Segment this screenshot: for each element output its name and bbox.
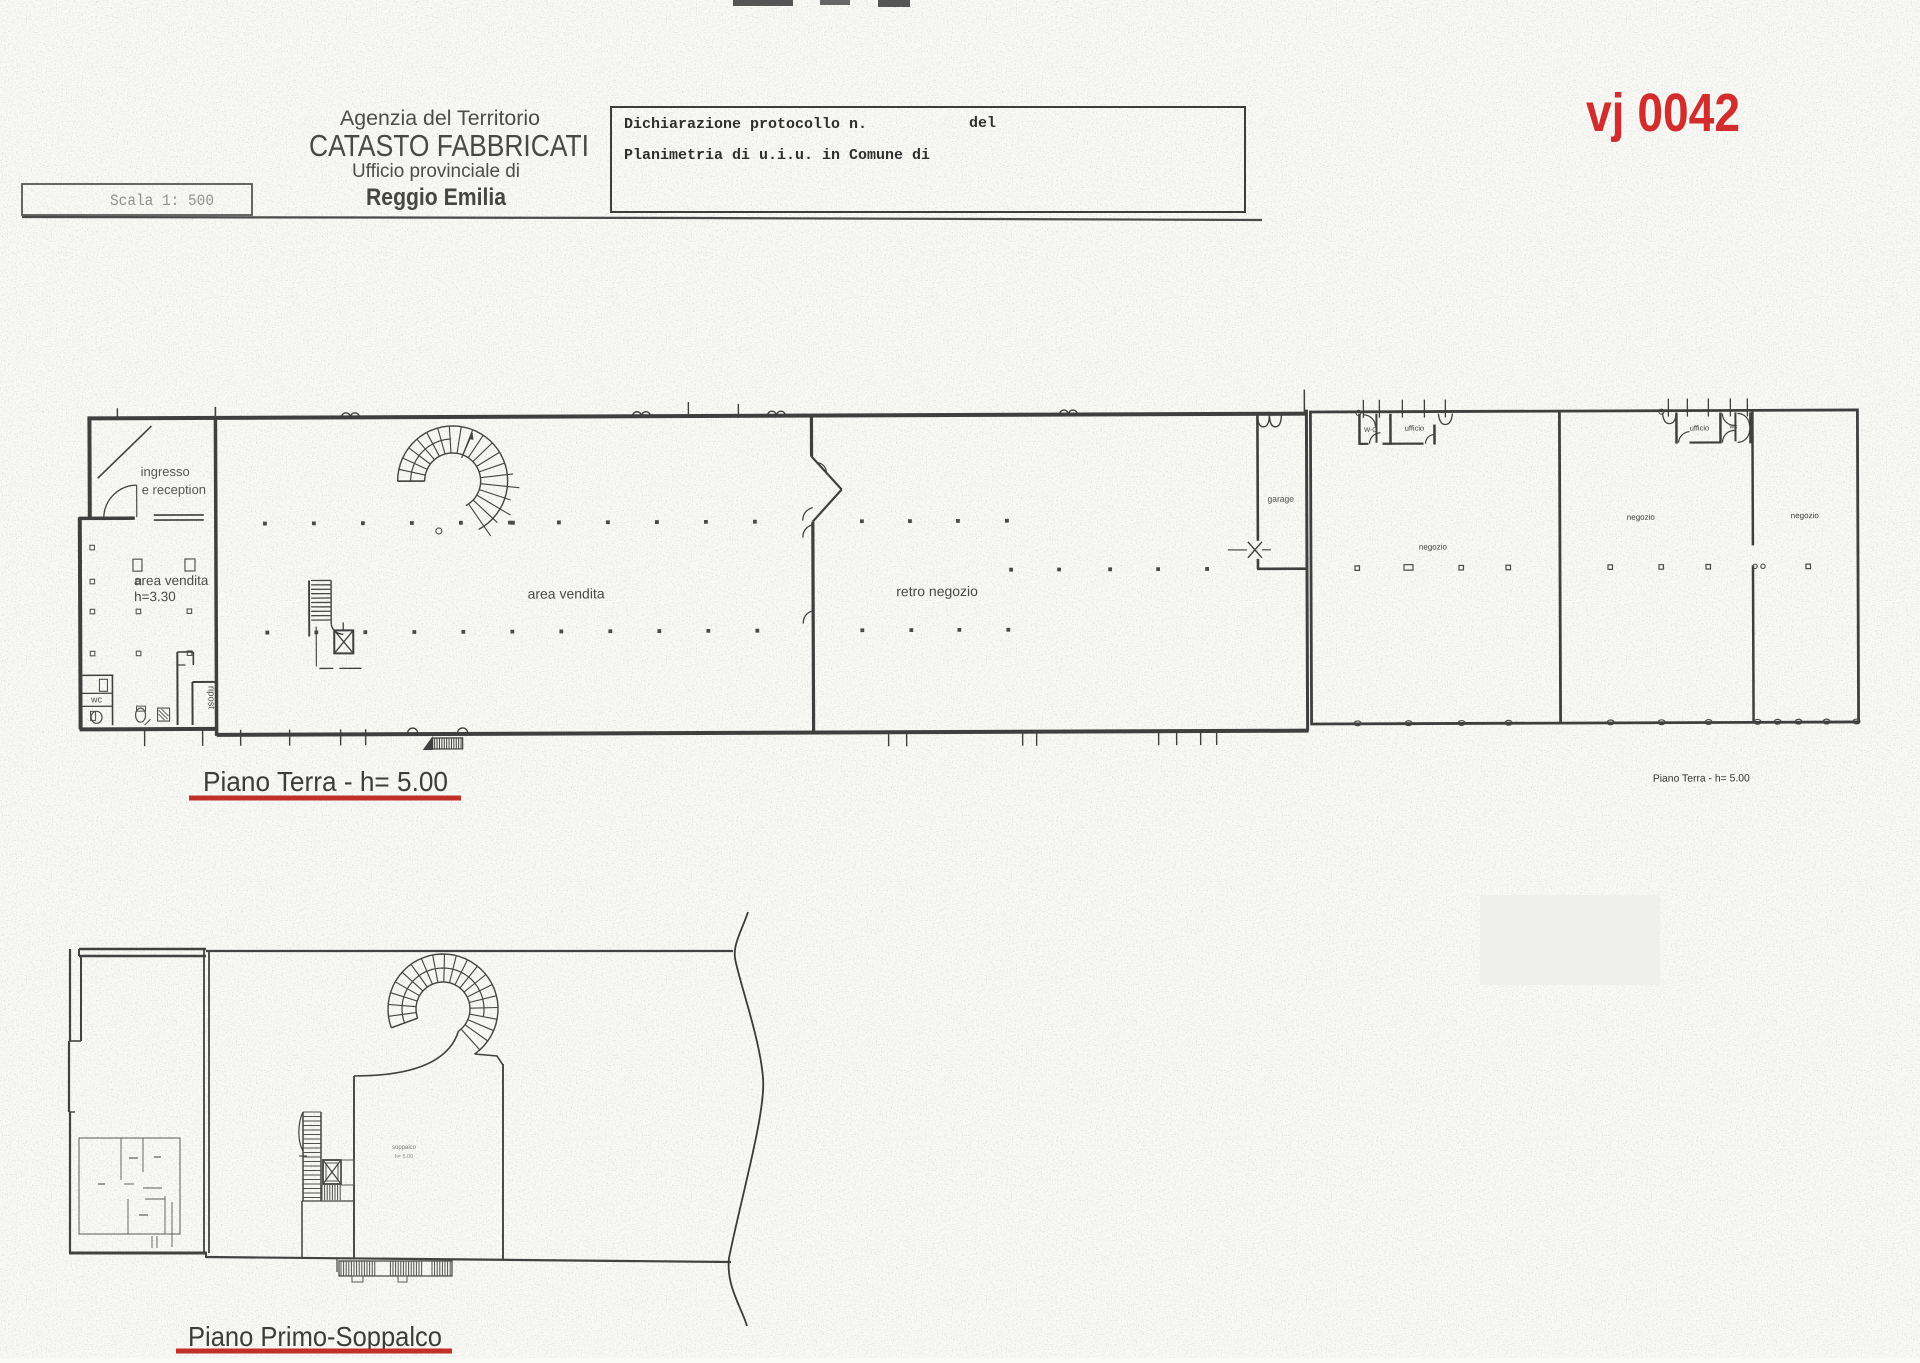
svg-text:retro negozio: retro negozio [896,583,978,599]
svg-text:area vendita: area vendita [528,585,605,601]
svg-text:ufficio: ufficio [1690,424,1710,433]
svg-text:Planimetria di u.i.u. in Comun: Planimetria di u.i.u. in Comune di [624,147,930,164]
svg-text:CATASTO FABBRICATI: CATASTO FABBRICATI [309,128,589,163]
svg-text:ingresso: ingresso [141,464,190,479]
svg-text:negozio: negozio [1791,511,1820,520]
svg-text:Piano Terra - h= 5.00: Piano Terra - h= 5.00 [203,766,448,797]
svg-text:ripost: ripost [205,686,216,710]
svg-text:ufficio: ufficio [1405,424,1425,433]
svg-text:Piano Terra - h= 5.00: Piano Terra - h= 5.00 [1653,772,1750,784]
svg-text:Dichiarazione protocollo n.: Dichiarazione protocollo n. [624,116,867,133]
svg-text:wc: wc [1728,423,1738,430]
svg-text:del: del [969,115,996,132]
svg-text:e reception: e reception [142,482,206,497]
svg-text:h=3.30: h=3.30 [134,589,176,604]
svg-text:h= 5.00: h= 5.00 [395,1154,414,1160]
svg-text:Agenzia del Territorio: Agenzia del Territorio [340,107,540,130]
svg-text:Scala 1: 500: Scala 1: 500 [110,192,214,210]
svg-text:soppalco: soppalco [392,1145,417,1151]
svg-text:wc: wc [90,694,103,704]
svg-text:Piano Primo-Soppalco: Piano Primo-Soppalco [188,1321,442,1352]
svg-text:garage: garage [1267,494,1294,504]
svg-text:negozio: negozio [1419,543,1448,552]
svg-text:vj 0042: vj 0042 [1586,83,1740,143]
svg-text:W-C: W-C [1364,427,1377,434]
svg-text:Reggio Emilia: Reggio Emilia [366,184,507,211]
svg-text:area vendita: area vendita [134,573,209,588]
svg-text:Ufficio provinciale di: Ufficio provinciale di [352,161,520,182]
svg-text:negozio: negozio [1627,513,1656,522]
